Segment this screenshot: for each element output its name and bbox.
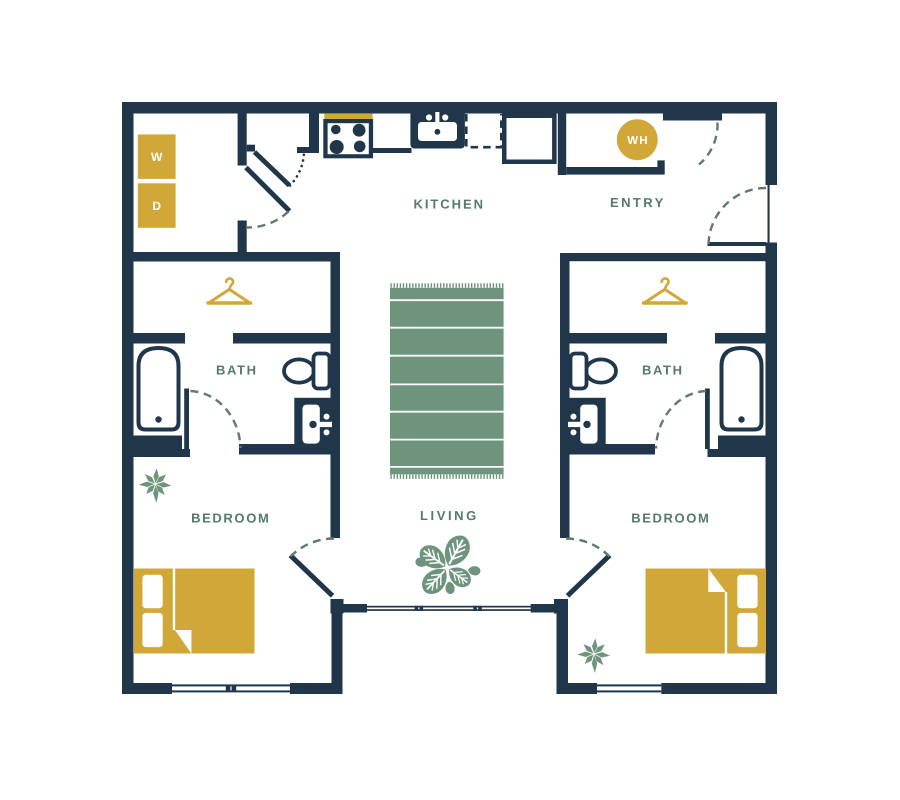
svg-text:BEDROOM: BEDROOM — [631, 511, 709, 526]
svg-text:ENTRY: ENTRY — [610, 195, 664, 210]
svg-text:W: W — [151, 150, 163, 164]
svg-text:WH: WH — [627, 135, 649, 147]
svg-text:D: D — [152, 199, 161, 213]
svg-text:BEDROOM: BEDROOM — [191, 511, 269, 526]
